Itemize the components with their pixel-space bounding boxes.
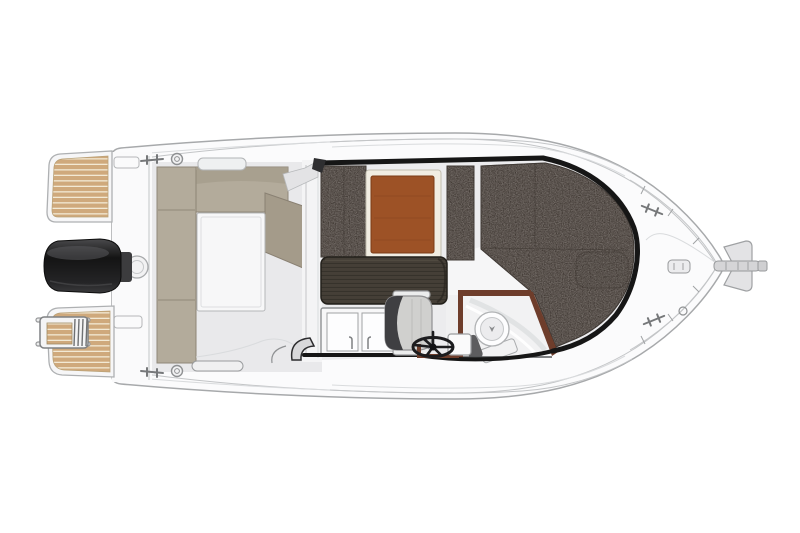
dinette-table xyxy=(366,170,441,258)
cockpit-hatch xyxy=(197,213,265,311)
deck-fitting xyxy=(668,260,690,273)
swim-platform-starboard xyxy=(36,306,114,377)
anchor-roller xyxy=(714,241,767,291)
boat-floor-plan xyxy=(0,0,800,533)
grab-handle xyxy=(198,158,246,170)
outboard-motor xyxy=(44,239,132,293)
rail-ring-top xyxy=(172,154,183,165)
rail-ring-bottom xyxy=(172,366,183,377)
swim-platform-port xyxy=(47,151,112,222)
boarding-ladder xyxy=(36,317,90,348)
cockpit xyxy=(152,158,322,372)
side-pocket xyxy=(192,361,243,371)
